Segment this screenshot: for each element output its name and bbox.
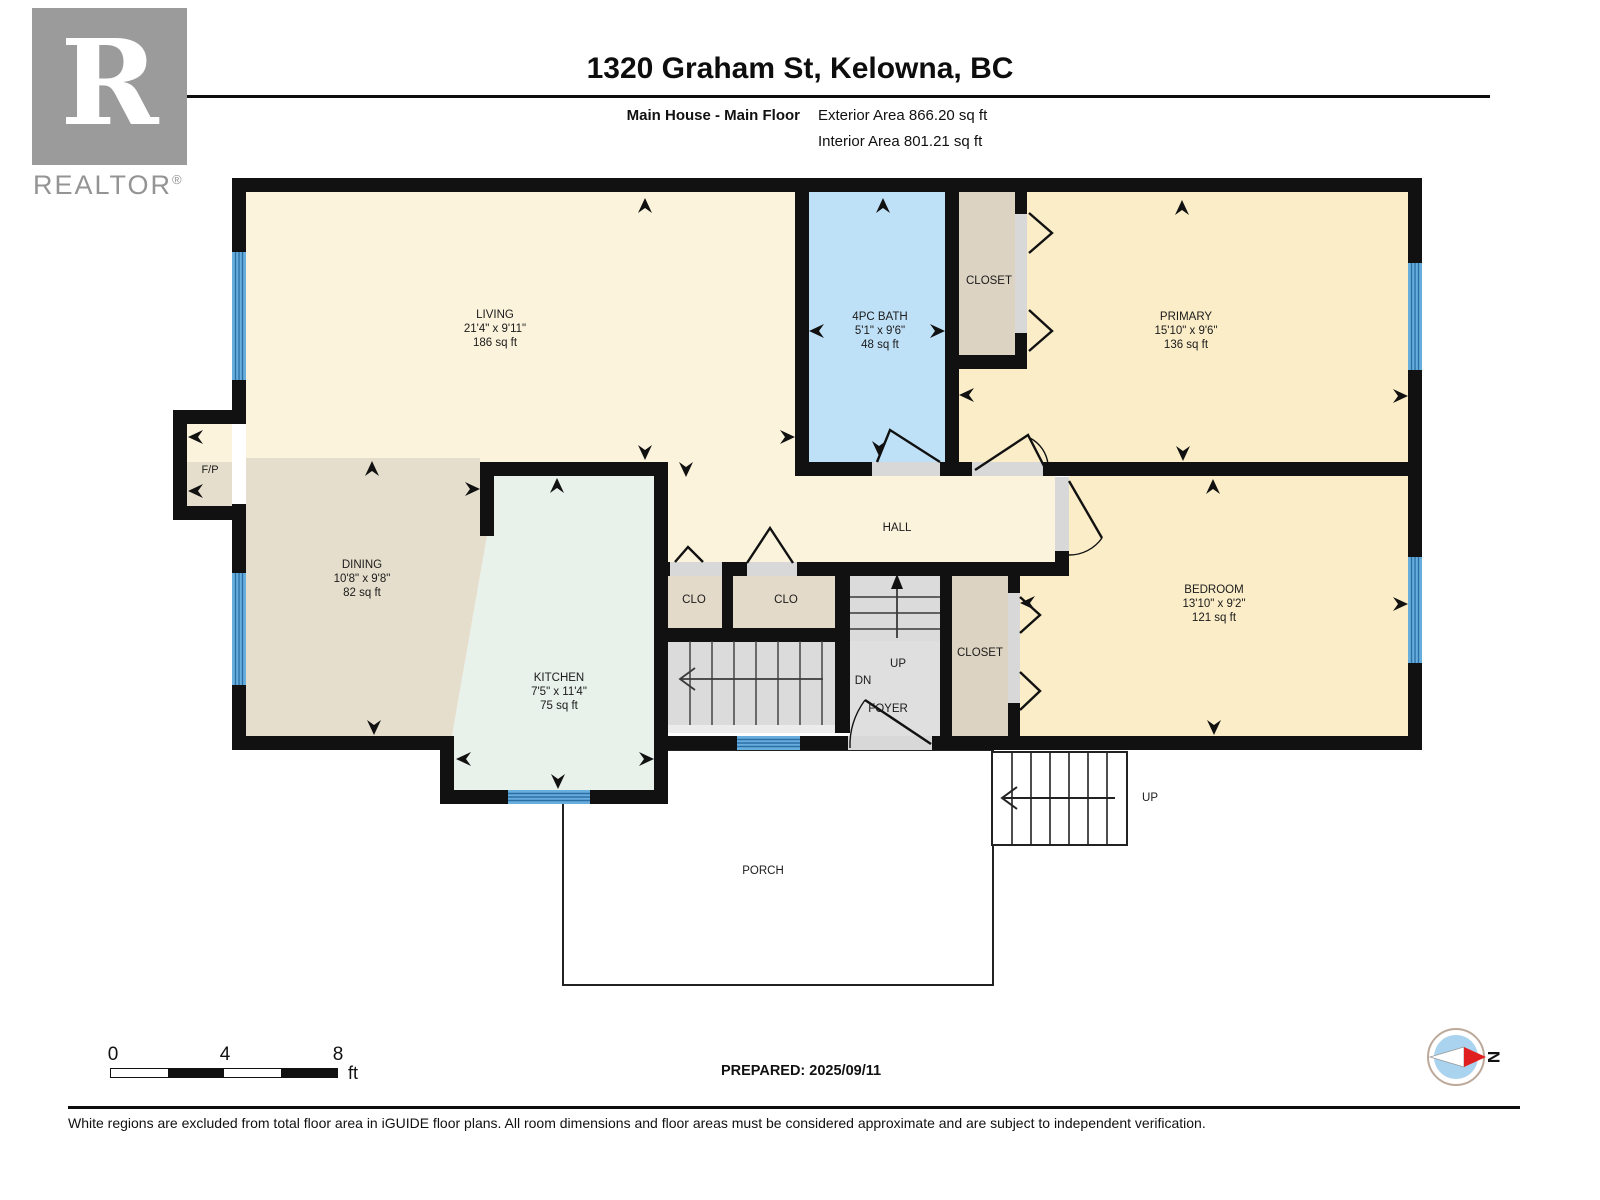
closet-top-track (1015, 214, 1027, 333)
dining-name: DINING (334, 558, 391, 572)
bath-name: 4PC BATH (852, 310, 907, 324)
foyer-door-sill (848, 736, 932, 750)
bath-label: 4PC BATH 5'1" x 9'6" 48 sq ft (852, 310, 907, 352)
bedroom-door-sill (1055, 477, 1069, 551)
floorplan-page: R REALTOR® 1320 Graham St, Kelowna, BC M… (0, 0, 1600, 1200)
bedroom-area-label: 121 sq ft (1182, 611, 1245, 625)
primary-label: PRIMARY 15'10" x 9'6" 136 sq ft (1154, 310, 1217, 352)
clo-right-track (747, 562, 797, 576)
fireplace-area-top (187, 424, 232, 462)
stairs-down-landing (668, 725, 835, 733)
clo-right-label: CLO (774, 593, 798, 607)
primary-area-label: 136 sq ft (1154, 338, 1217, 352)
bedroom-dims: 13'10" x 9'2" (1182, 597, 1245, 611)
foyer-window (737, 736, 800, 750)
bedroom-label: BEDROOM 13'10" x 9'2" 121 sq ft (1182, 583, 1245, 625)
scale-segment (224, 1069, 281, 1077)
footer-divider (68, 1106, 1520, 1109)
dining-dims: 10'8" x 9'8" (334, 572, 391, 586)
dining-label: DINING 10'8" x 9'8" 82 sq ft (334, 558, 391, 600)
primary-name: PRIMARY (1154, 310, 1217, 324)
bath-door-sill (872, 462, 940, 476)
foyer-area (850, 641, 940, 736)
hall-label: HALL (883, 521, 912, 535)
fireplace-label: F/P (201, 463, 218, 477)
bedroom-window (1408, 557, 1422, 663)
stairs-down-area (668, 641, 835, 725)
porch-label: PORCH (742, 864, 784, 878)
living-dims: 21'4" x 9'11" (464, 322, 526, 336)
bath-dims: 5'1" x 9'6" (852, 324, 907, 338)
disclaimer-text: White regions are excluded from total fl… (68, 1115, 1528, 1131)
clo-left-label: CLO (682, 593, 706, 607)
compass-north-label: N (1483, 1051, 1503, 1063)
living-window (232, 252, 246, 380)
stairs-down-label: DN (855, 674, 872, 688)
compass-icon (1428, 1029, 1486, 1085)
exterior-stairs-up-label: UP (1142, 791, 1158, 805)
kitchen-label: KITCHEN 7'5" x 11'4" 75 sq ft (531, 671, 587, 713)
bedroom-name: BEDROOM (1182, 583, 1245, 597)
foyer-label: FOYER (868, 702, 908, 716)
closet-bottom-label: CLOSET (957, 646, 1003, 660)
scale-unit: ft (348, 1063, 358, 1084)
living-label: LIVING 21'4" x 9'11" 186 sq ft (464, 308, 526, 350)
bath-area: 48 sq ft (852, 338, 907, 352)
primary-dims: 15'10" x 9'6" (1154, 324, 1217, 338)
dining-window (232, 573, 246, 685)
living-area: 186 sq ft (464, 336, 526, 350)
exterior-stairs (992, 752, 1127, 845)
prepared-date: PREPARED: 2025/09/11 (650, 1063, 952, 1079)
scale-segment (281, 1069, 338, 1077)
living-name: LIVING (464, 308, 526, 322)
scale-bar (110, 1068, 338, 1078)
primary-window (1408, 263, 1422, 370)
closet-bottom-track (1008, 593, 1020, 703)
kitchen-window (508, 790, 590, 804)
floor-plan-drawing (0, 0, 1600, 1200)
kitchen-name: KITCHEN (531, 671, 587, 685)
scale-segment (168, 1069, 225, 1077)
dining-area-label: 82 sq ft (334, 586, 391, 600)
clo-left-track (670, 562, 722, 576)
closet-top-label: CLOSET (966, 274, 1012, 288)
scale-tick-4: 4 (220, 1044, 231, 1066)
kitchen-area-label: 75 sq ft (531, 699, 587, 713)
scale-tick-0: 0 (108, 1044, 119, 1066)
kitchen-dims: 7'5" x 11'4" (531, 685, 587, 699)
scale-tick-8: 8 (333, 1044, 344, 1066)
scale-segment (111, 1069, 168, 1077)
hall-area (654, 462, 1055, 576)
stairs-up-label: UP (890, 657, 906, 671)
